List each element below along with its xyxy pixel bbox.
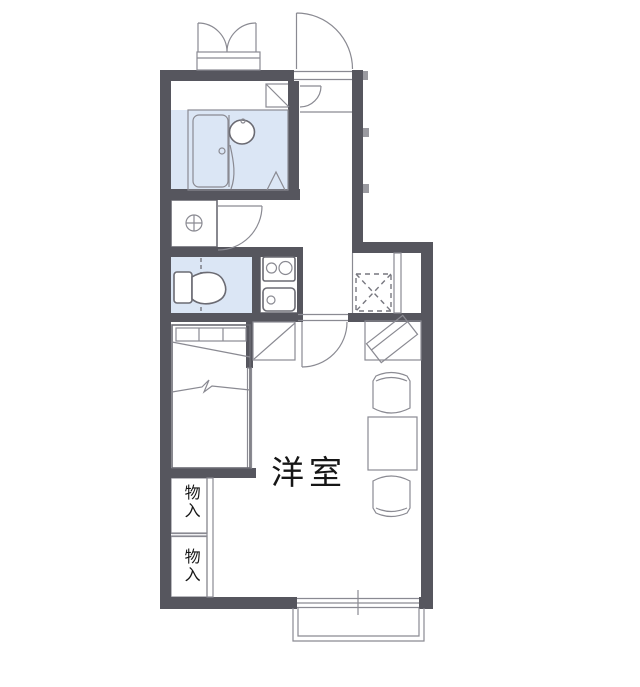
wall-kitchen-right [297, 247, 303, 322]
refrigerator-space-icon [356, 274, 391, 311]
floorplan-drawing [0, 0, 640, 687]
entry-opening [294, 72, 352, 80]
wall-ext [363, 71, 368, 80]
wall-mid [171, 247, 303, 257]
water-heater-diagonal [266, 84, 289, 107]
meter-box-icon [363, 128, 369, 137]
wall-toilet-kitchen [252, 247, 260, 322]
wall-top [160, 70, 294, 81]
kitchen-sink-icon [263, 288, 295, 311]
floorplan: 洋室 物入 物入 [0, 0, 640, 687]
entry-step [197, 52, 260, 70]
meter-box-icon [363, 184, 369, 193]
wall-room-top-left [171, 313, 298, 322]
storage-front-partition [207, 478, 213, 597]
entry-door-icon [297, 13, 353, 69]
hall-door-icon [218, 206, 262, 250]
wall-bathroom-right [288, 81, 299, 200]
storage-divider [171, 534, 207, 537]
shoe-cabinet-door-icon [300, 86, 321, 107]
washbasin-icon [230, 120, 255, 144]
dining-set [368, 373, 417, 517]
wall-storage-top [160, 468, 256, 478]
chair-back [376, 508, 407, 512]
wall-step [352, 242, 433, 253]
double-outswing-doors-icon [198, 23, 256, 52]
bed-icon [172, 325, 250, 468]
storage-lower-label: 物入 [180, 548, 202, 584]
storage-upper-label: 物入 [180, 484, 202, 520]
tv-on-stand-icon [365, 315, 421, 362]
counter-icon [253, 322, 295, 360]
chair-back [376, 378, 407, 382]
wall-right-lower [421, 242, 433, 609]
wall-bottom-right [419, 597, 433, 609]
dining-table-icon [368, 417, 417, 470]
wall-right-upper [352, 70, 363, 253]
room-doorway [298, 315, 348, 321]
wall-bottom-left [160, 597, 297, 609]
washing-machine-faucet-icon [186, 215, 202, 231]
chair-icon [373, 476, 410, 517]
room-door-icon [302, 322, 347, 367]
fridge-niche-partition [394, 253, 401, 313]
gas-stove-2-burner-icon [263, 257, 295, 281]
wall-left [160, 70, 171, 609]
chair-icon [373, 373, 410, 414]
room-label: 洋室 [271, 446, 347, 494]
wall-bathroom-bottom [171, 189, 300, 200]
